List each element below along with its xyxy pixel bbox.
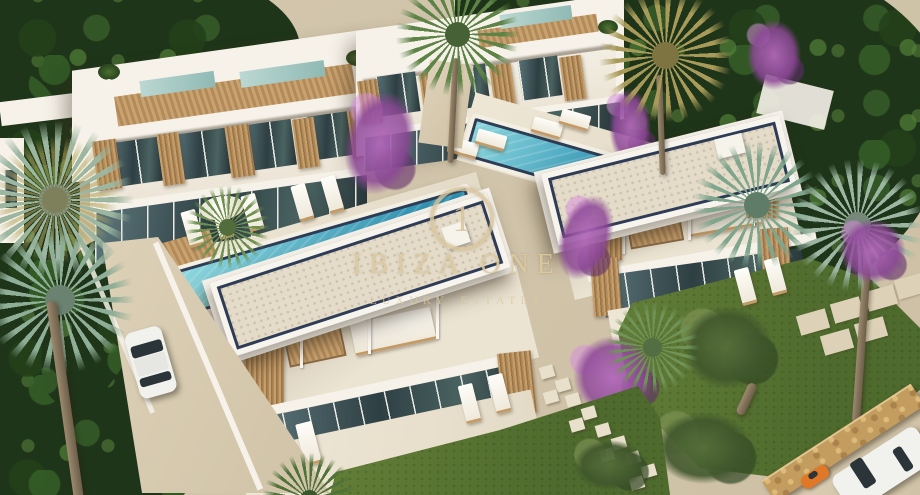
bougainvillea [825,205,920,297]
stepping-stone [539,364,556,379]
stepping-stone [543,389,560,404]
villa-2-window [517,55,562,100]
villa-render-image: 1 IBIZA ONE LUXURY ESTATES [0,0,920,495]
palm-tree [185,185,270,270]
planter [98,64,120,80]
planter-pot [105,79,113,87]
roof-post [436,295,439,339]
palm-tree [605,300,700,395]
bougainvillea [735,5,813,105]
shrub [560,430,660,495]
